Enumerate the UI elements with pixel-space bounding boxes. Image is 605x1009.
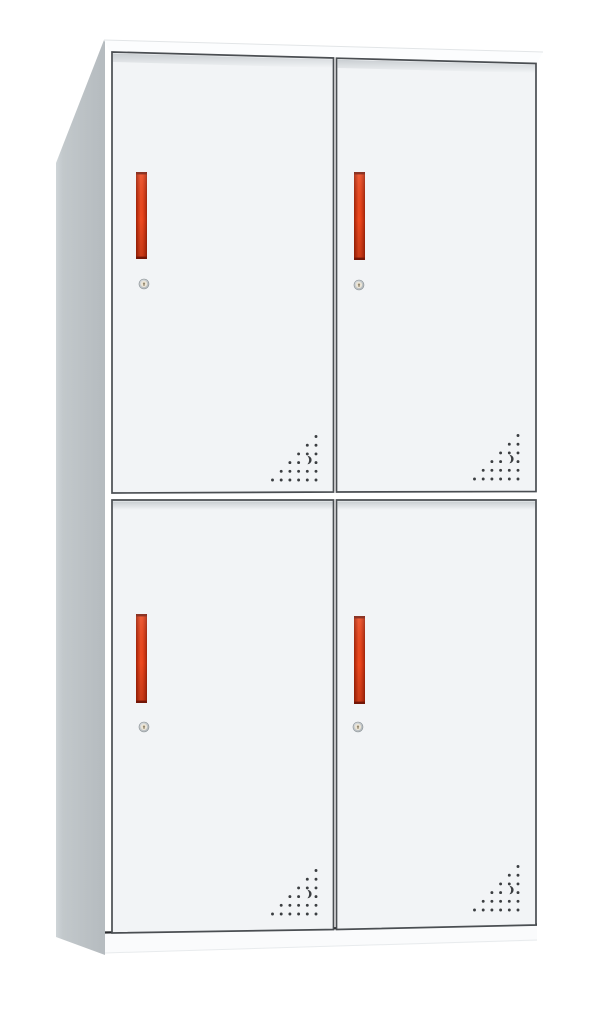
cabinet-side-panel bbox=[56, 40, 105, 955]
vent-hole bbox=[499, 451, 502, 454]
vent-hole bbox=[517, 882, 520, 885]
vent-hole bbox=[306, 444, 309, 447]
vent-hole bbox=[508, 443, 511, 446]
vent-hole bbox=[315, 461, 318, 464]
vent-hole bbox=[306, 479, 309, 482]
keyhole-slot bbox=[143, 727, 144, 729]
door-bottom-right bbox=[337, 500, 537, 930]
vent-hole bbox=[517, 865, 520, 868]
door-lock bbox=[139, 722, 149, 732]
vent-hole bbox=[297, 886, 300, 889]
vent-hole bbox=[306, 886, 309, 889]
door-top-shading bbox=[113, 502, 333, 511]
vent-hole bbox=[508, 882, 511, 885]
vent-hole bbox=[315, 470, 318, 473]
vent-hole bbox=[297, 895, 300, 898]
vent-hole bbox=[280, 479, 283, 482]
vent-hole bbox=[315, 479, 318, 482]
vent-hole bbox=[482, 909, 485, 912]
vent-hole bbox=[315, 878, 318, 881]
vent-hole bbox=[288, 904, 291, 907]
vent-hole bbox=[315, 895, 318, 898]
vent-hole bbox=[499, 900, 502, 903]
vent-hole bbox=[517, 443, 520, 446]
vent-hole bbox=[490, 469, 493, 472]
door-handle bbox=[136, 172, 147, 259]
door-lock bbox=[139, 279, 149, 289]
vent-hole bbox=[517, 478, 520, 481]
vent-hole bbox=[499, 478, 502, 481]
vent-hole bbox=[315, 452, 318, 455]
door-panel bbox=[337, 58, 537, 492]
vent-hole bbox=[490, 891, 493, 894]
vent-hole bbox=[288, 479, 291, 482]
locker-cabinet-illustration bbox=[0, 0, 605, 1009]
vent-hole bbox=[297, 479, 300, 482]
vent-hole bbox=[517, 469, 520, 472]
vent-hole bbox=[517, 900, 520, 903]
vent-hole bbox=[306, 904, 309, 907]
vent-hole bbox=[508, 874, 511, 877]
vent-hole bbox=[517, 891, 520, 894]
vent-hole bbox=[315, 913, 318, 916]
vent-hole bbox=[508, 478, 511, 481]
vent-hole bbox=[280, 470, 283, 473]
vent-hole bbox=[288, 470, 291, 473]
vent-hole bbox=[297, 452, 300, 455]
door-handle bbox=[136, 614, 147, 703]
vent-hole bbox=[288, 913, 291, 916]
door-lock bbox=[353, 722, 363, 732]
vent-hole bbox=[280, 913, 283, 916]
vent-hole bbox=[499, 882, 502, 885]
vent-hole bbox=[297, 470, 300, 473]
vent-hole bbox=[508, 909, 511, 912]
vent-hole bbox=[490, 478, 493, 481]
door-panel bbox=[337, 500, 537, 930]
door-top-shading bbox=[338, 502, 536, 511]
door-bottom-left bbox=[112, 500, 334, 933]
vent-hole bbox=[517, 874, 520, 877]
vent-hole bbox=[315, 886, 318, 889]
keyhole-slot bbox=[143, 284, 144, 286]
vent-hole bbox=[482, 900, 485, 903]
vent-hole bbox=[499, 891, 502, 894]
vent-hole bbox=[288, 895, 291, 898]
handle-shading bbox=[136, 614, 147, 703]
vent-hole bbox=[508, 469, 511, 472]
keyhole-slot bbox=[358, 285, 359, 287]
door-panel bbox=[112, 500, 334, 933]
vent-hole bbox=[271, 913, 274, 916]
vent-hole bbox=[517, 460, 520, 463]
vent-hole bbox=[490, 460, 493, 463]
vent-hole bbox=[315, 444, 318, 447]
vent-hole bbox=[517, 909, 520, 912]
vent-hole bbox=[490, 900, 493, 903]
vent-hole bbox=[473, 909, 476, 912]
handle-shading bbox=[354, 172, 365, 260]
vent-hole bbox=[306, 452, 309, 455]
door-handle bbox=[354, 172, 365, 260]
door-top-left bbox=[112, 52, 334, 493]
vent-hole bbox=[315, 869, 318, 872]
vent-hole bbox=[499, 460, 502, 463]
vent-hole bbox=[490, 909, 493, 912]
door-handle bbox=[354, 616, 365, 704]
vent-hole bbox=[306, 878, 309, 881]
vent-hole bbox=[315, 435, 318, 438]
door-top-right bbox=[337, 58, 537, 492]
vent-hole bbox=[315, 904, 318, 907]
vent-hole bbox=[508, 451, 511, 454]
vent-hole bbox=[280, 904, 283, 907]
vent-hole bbox=[508, 900, 511, 903]
handle-shading bbox=[136, 172, 147, 259]
vent-hole bbox=[499, 469, 502, 472]
product-photo-canvas bbox=[0, 0, 605, 1009]
handle-shading bbox=[354, 616, 365, 704]
vent-hole bbox=[499, 909, 502, 912]
vent-hole bbox=[297, 904, 300, 907]
vent-hole bbox=[517, 451, 520, 454]
vent-hole bbox=[482, 469, 485, 472]
door-panel bbox=[112, 52, 334, 493]
keyhole-slot bbox=[357, 727, 358, 729]
vent-hole bbox=[288, 461, 291, 464]
vent-hole bbox=[297, 461, 300, 464]
door-lock bbox=[354, 280, 364, 290]
vent-hole bbox=[297, 913, 300, 916]
vent-hole bbox=[271, 479, 274, 482]
vent-hole bbox=[306, 470, 309, 473]
vent-hole bbox=[306, 913, 309, 916]
vent-hole bbox=[517, 434, 520, 437]
vent-hole bbox=[482, 478, 485, 481]
vent-hole bbox=[473, 478, 476, 481]
